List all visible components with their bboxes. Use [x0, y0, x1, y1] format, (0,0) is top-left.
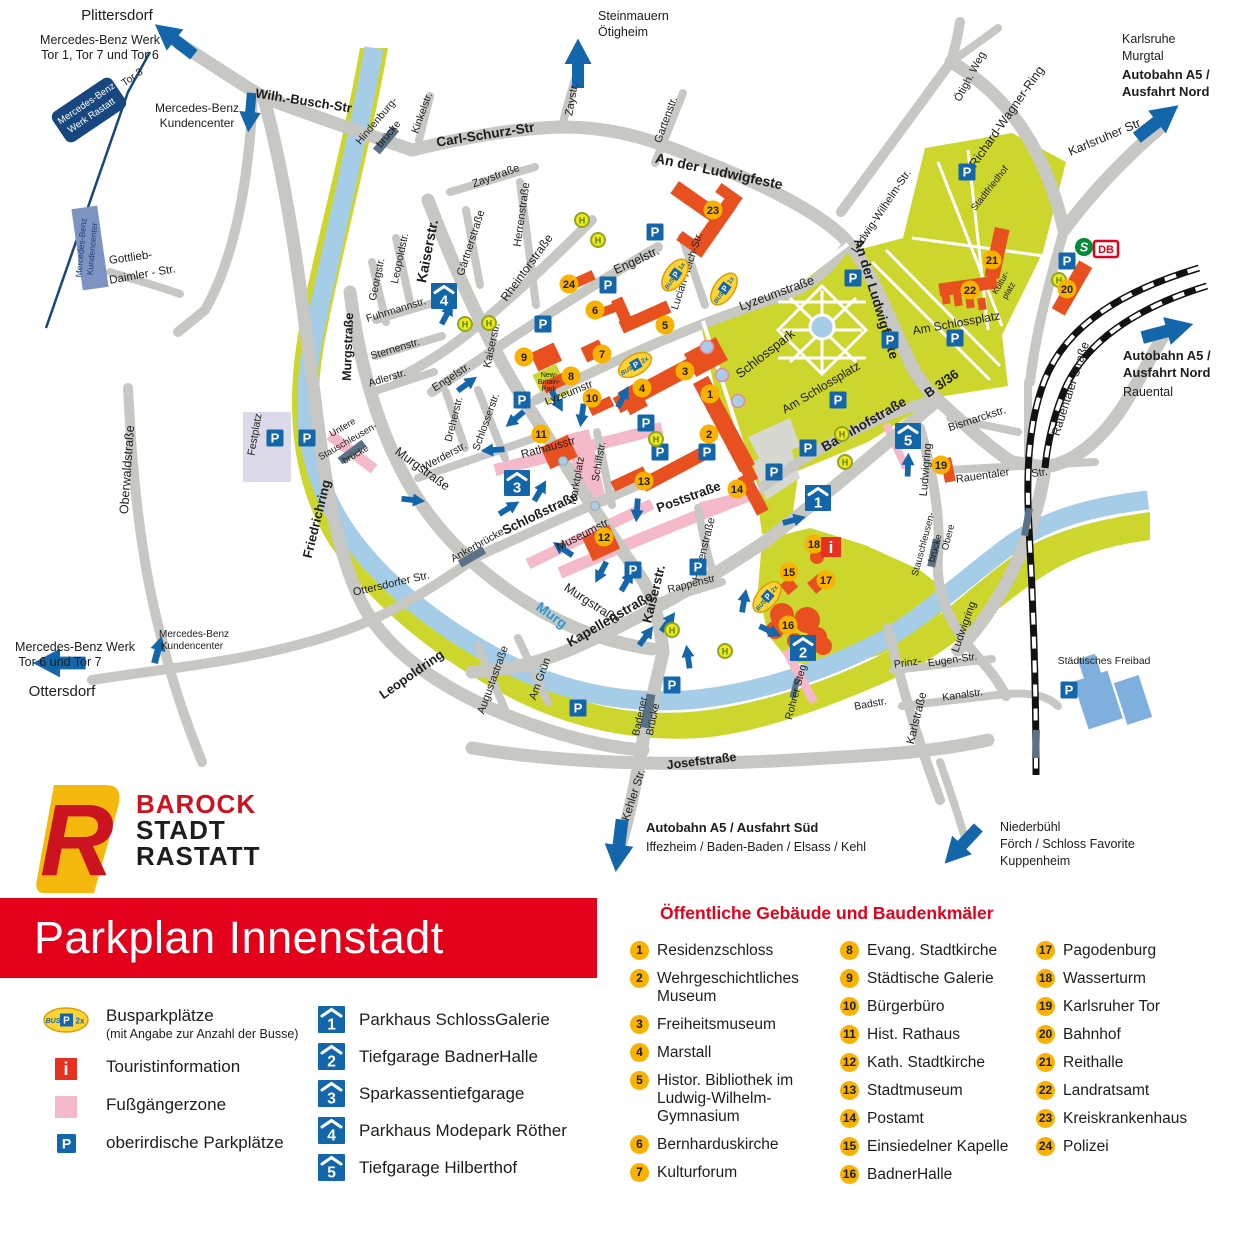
- poi-legend-item-14: 14Postamt: [840, 1109, 1022, 1128]
- poi-label: Landratsamt: [1063, 1081, 1149, 1100]
- poi-legend-item-13: 13Stadtmuseum: [840, 1081, 1022, 1100]
- garage-legend: 1Parkhaus SchlossGalerie2Tiefgarage Badn…: [318, 1006, 567, 1191]
- poi-heading: Öffentliche Gebäude und Baudenkmäler: [660, 903, 994, 924]
- parking-icon: P: [830, 392, 847, 409]
- poi-marker-17: 17: [817, 571, 836, 590]
- parking-icon: P: [647, 224, 664, 241]
- poi-marker-14: 14: [728, 480, 747, 499]
- poi-label: Marstall: [657, 1043, 711, 1062]
- svg-text:i: i: [63, 1059, 68, 1079]
- poi-number-badge: 18: [1036, 969, 1055, 988]
- barock-stadt-rastatt-logo: R BAROCK STADT RASTATT: [36, 783, 260, 895]
- garage-icon: 1: [318, 1006, 345, 1033]
- svg-text:12: 12: [598, 532, 610, 544]
- svg-text:15: 15: [783, 567, 795, 579]
- garage-legend-item-3: 3Sparkassentiefgarage: [318, 1080, 567, 1107]
- svg-text:8: 8: [568, 371, 574, 383]
- garage-legend-label: Sparkassentiefgarage: [345, 1084, 524, 1104]
- poi-label: Stadtmuseum: [867, 1081, 963, 1100]
- poi-marker-8: 8: [562, 367, 581, 386]
- poi-legend-item-18: 18Wasserturm: [1036, 969, 1216, 988]
- poi-number-badge: 22: [1036, 1081, 1055, 1100]
- poi-label: Wehrgeschichtliches Museum: [657, 969, 826, 1006]
- poi-number-badge: 5: [630, 1071, 649, 1090]
- legend-item-parking: Poberirdische Parkplätze: [40, 1133, 298, 1153]
- poi-marker-12: 12: [595, 528, 614, 547]
- legend-label: Busparkplätze(mit Angabe zur Anzahl der …: [92, 1006, 298, 1042]
- sbahn-logo: S: [1075, 238, 1093, 256]
- garage-legend-item-4: 4Parkhaus Modepark Röther: [318, 1117, 567, 1144]
- poi-number-badge: 8: [840, 941, 859, 960]
- poi-label: Evang. Stadtkirche: [867, 941, 997, 960]
- legend-sublabel: (mit Angabe zur Anzahl der Busse): [106, 1026, 298, 1042]
- svg-text:2: 2: [706, 429, 712, 441]
- flow-arrow-icon: [680, 644, 696, 669]
- map-label: Ausfahrt Nord: [1123, 365, 1210, 380]
- map-label: Niederbühl: [1000, 820, 1060, 834]
- map-label: Ottersdorf: [29, 683, 97, 700]
- svg-text:16: 16: [782, 620, 794, 632]
- svg-text:1: 1: [707, 389, 713, 401]
- poi-number-badge: 7: [630, 1163, 649, 1182]
- parking-icon: P: [514, 392, 531, 409]
- garage-icon: 2: [318, 1043, 345, 1070]
- poi-legend-item-16: 16BadnerHalle: [840, 1165, 1022, 1184]
- garage-legend-label: Tiefgarage BadnerHalle: [345, 1047, 538, 1067]
- map-label: Steinmauern: [598, 9, 669, 23]
- svg-text:3: 3: [513, 480, 521, 497]
- map-label: Autobahn A5 /: [1122, 67, 1210, 82]
- poi-legend-item-8: 8Evang. Stadtkirche: [840, 941, 1022, 960]
- svg-text:18: 18: [808, 539, 820, 551]
- map-label: Tor 1, Tor 7 und Tor 6: [41, 48, 159, 62]
- svg-text:11: 11: [535, 429, 547, 441]
- parking-icon: P: [766, 464, 783, 481]
- poi-legend-item-5: 5Histor. Bibliothek im Ludwig-Wilhelm-Gy…: [630, 1071, 826, 1126]
- poi-marker-7: 7: [593, 345, 612, 364]
- bus-stop-icon: H: [482, 316, 496, 330]
- poi-number-badge: 20: [1036, 1025, 1055, 1044]
- svg-text:H: H: [462, 320, 469, 330]
- poi-marker-20: 20: [1058, 280, 1077, 299]
- poi-column-2: 8Evang. Stadtkirche9Städtische Galerie10…: [840, 941, 1022, 1193]
- poi-number-badge: 1: [630, 941, 649, 960]
- poi-legend-item-17: 17Pagodenburg: [1036, 941, 1216, 960]
- map-label: Mercedes-Benz: [159, 629, 229, 640]
- poi-number-badge: 14: [840, 1109, 859, 1128]
- svg-text:P: P: [629, 563, 638, 578]
- svg-text:i: i: [829, 538, 834, 557]
- poi-marker-13: 13: [635, 472, 654, 491]
- poi-legend-item-15: 15Einsiedelner Kapelle: [840, 1137, 1022, 1156]
- svg-text:20: 20: [1061, 284, 1073, 296]
- map-label: Autobahn A5 / Ausfahrt Süd: [646, 820, 818, 835]
- svg-text:P: P: [804, 441, 813, 456]
- page-title: Parkplan Innenstadt: [0, 912, 444, 964]
- parking-icon: P: [638, 415, 655, 432]
- poi-marker-3: 3: [676, 362, 695, 381]
- svg-text:R: R: [40, 783, 114, 895]
- bus-stop-icon: H: [575, 213, 589, 227]
- map-label: Gottlieb-: [108, 249, 153, 267]
- map-label: Engelstr.: [430, 361, 472, 394]
- svg-text:17: 17: [820, 575, 832, 587]
- svg-text:2: 2: [799, 645, 807, 662]
- map-label: Kuppenheim: [1000, 854, 1070, 868]
- poi-marker-1: 1: [701, 385, 720, 404]
- svg-text:P: P: [651, 225, 660, 240]
- poi-marker-24: 24: [560, 275, 579, 294]
- poi-legend-item-21: 21Reithalle: [1036, 1053, 1216, 1072]
- poi-legend-item-19: 19Karlsruher Tor: [1036, 997, 1216, 1016]
- poi-marker-5: 5: [656, 316, 675, 335]
- map-label: Mercedes-Benz: [155, 101, 239, 115]
- map-label: Iffezheim / Baden-Baden / Elsass / Kehl: [646, 840, 866, 854]
- poi-marker-4: 4: [633, 379, 652, 398]
- bus-stop-icon: H: [718, 644, 732, 658]
- parking-icon: P: [1059, 253, 1076, 270]
- poi-legend-item-9: 9Städtische Galerie: [840, 969, 1022, 988]
- tourist-info-icon: i: [55, 1058, 77, 1080]
- svg-text:P: P: [834, 393, 843, 408]
- poi-number-badge: 2: [630, 969, 649, 988]
- map-label: Sternenstr.: [369, 336, 421, 362]
- map-label: Britain-: [538, 379, 561, 386]
- svg-text:19: 19: [935, 460, 947, 472]
- map-label: Ausfahrt Nord: [1122, 84, 1209, 99]
- garage-icon: 3: [318, 1080, 345, 1107]
- poi-label: Bürgerbüro: [867, 997, 945, 1016]
- svg-text:P: P: [61, 1136, 70, 1152]
- logo-line2: STADT: [136, 817, 260, 843]
- poi-number-badge: 12: [840, 1053, 859, 1072]
- svg-text:23: 23: [707, 205, 719, 217]
- legend-label: Touristinformation: [92, 1057, 240, 1077]
- poi-label: Wasserturm: [1063, 969, 1146, 988]
- garage-icon: 5: [318, 1154, 345, 1181]
- poi-legend-item-3: 3Freiheitsmuseum: [630, 1015, 826, 1034]
- map-label: Carl-Schurz-Str: [435, 119, 536, 149]
- legend-label: Fußgängerzone: [92, 1095, 226, 1115]
- poi-marker-16: 16: [779, 616, 798, 635]
- bus-stop-icon: H: [649, 432, 663, 446]
- poi-number-badge: 15: [840, 1137, 859, 1156]
- svg-text:H: H: [722, 647, 729, 657]
- garage-legend-item-1: 1Parkhaus SchlossGalerie: [318, 1006, 567, 1033]
- svg-text:P: P: [1065, 683, 1074, 698]
- poi-label: Pagodenburg: [1063, 941, 1156, 960]
- poi-marker-18: 18: [805, 535, 824, 554]
- logo-line1: BAROCK: [136, 791, 260, 817]
- legend-symbols: BUSP2xBusparkplätze(mit Angabe zur Anzah…: [40, 1006, 298, 1168]
- map-label: New-: [541, 372, 558, 379]
- poi-number-badge: 23: [1036, 1109, 1055, 1128]
- poi-legend-item-12: 12Kath. Stadtkirche: [840, 1053, 1022, 1072]
- poi-number-badge: 19: [1036, 997, 1055, 1016]
- legend-item-info: iTouristinformation: [40, 1057, 298, 1080]
- poi-column-1: 1Residenzschloss2Wehrgeschichtliches Mus…: [630, 941, 826, 1193]
- map-label: Kundencenter: [160, 116, 235, 130]
- poi-label: Kreiskrankenhaus: [1063, 1109, 1187, 1128]
- poi-label: Histor. Bibliothek im Ludwig-Wilhelm-Gym…: [657, 1071, 826, 1126]
- svg-text:21: 21: [986, 255, 998, 267]
- svg-text:10: 10: [586, 393, 598, 405]
- title-banner: Parkplan Innenstadt: [0, 898, 597, 978]
- svg-text:2: 2: [327, 1054, 336, 1071]
- poi-number-badge: 6: [630, 1135, 649, 1154]
- svg-text:6: 6: [592, 305, 598, 317]
- svg-text:DB: DB: [1098, 244, 1114, 256]
- poi-marker-15: 15: [780, 563, 799, 582]
- tourist-info-icon: i: [821, 537, 841, 557]
- svg-text:P: P: [604, 278, 613, 293]
- garage-marker-4: 4: [431, 283, 457, 310]
- poi-label: Residenzschloss: [657, 941, 773, 960]
- svg-text:2x: 2x: [76, 1017, 85, 1026]
- garage-marker-2: 2: [790, 635, 816, 662]
- poi-marker-22: 22: [961, 281, 980, 300]
- svg-text:P: P: [518, 393, 527, 408]
- svg-text:5: 5: [904, 433, 912, 450]
- poi-label: BadnerHalle: [867, 1165, 952, 1184]
- parkplan-poster: PlittersdorfMercedes-Benz WerkTor 1, Tor…: [0, 0, 1240, 1240]
- map-label: Kehler Str.: [620, 768, 648, 823]
- parking-icon: P: [845, 270, 862, 287]
- db-logo: DB: [1094, 241, 1118, 257]
- garage-marker-5: 5: [895, 423, 921, 450]
- svg-text:P: P: [963, 165, 972, 180]
- poi-number-badge: 24: [1036, 1137, 1055, 1156]
- poi-marker-19: 19: [932, 456, 951, 475]
- garage-legend-item-5: 5Tiefgarage Hilberthof: [318, 1154, 567, 1181]
- svg-text:P: P: [539, 317, 548, 332]
- svg-text:H: H: [842, 458, 849, 468]
- poi-label: Postamt: [867, 1109, 924, 1128]
- exit-arrow-icon: [1139, 310, 1197, 351]
- poi-label: Kath. Stadtkirche: [867, 1053, 985, 1072]
- svg-text:P: P: [642, 416, 651, 431]
- parking-icon: P: [570, 700, 587, 717]
- bus-parking-icon: BUSP2x: [43, 1007, 89, 1033]
- svg-text:4: 4: [440, 293, 449, 310]
- poi-label: Städtische Galerie: [867, 969, 994, 988]
- poi-marker-23: 23: [704, 201, 723, 220]
- poi-label: Polizei: [1063, 1137, 1109, 1156]
- legend-item-bus: BUSP2xBusparkplätze(mit Angabe zur Anzah…: [40, 1006, 298, 1042]
- city-map: PlittersdorfMercedes-Benz WerkTor 1, Tor…: [0, 0, 1240, 898]
- poi-number-badge: 4: [630, 1043, 649, 1062]
- svg-text:5: 5: [662, 320, 668, 332]
- poi-column-3: 17Pagodenburg18Wasserturm19Karlsruher To…: [1036, 941, 1216, 1193]
- poi-legend-item-23: 23Kreiskrankenhaus: [1036, 1109, 1216, 1128]
- svg-text:P: P: [886, 333, 895, 348]
- svg-text:3: 3: [327, 1091, 336, 1108]
- map-label: Städtisches Freibad: [1058, 655, 1151, 667]
- bus-stop-icon: H: [591, 233, 605, 247]
- parking-icon: P: [600, 277, 617, 294]
- svg-text:4: 4: [327, 1128, 336, 1145]
- bus-stop-icon: H: [665, 623, 679, 637]
- svg-text:H: H: [595, 236, 602, 246]
- bus-stop-icon: H: [458, 317, 472, 331]
- svg-text:3: 3: [682, 366, 688, 378]
- logo-line3: RASTATT: [136, 843, 260, 869]
- garage-icon: 4: [318, 1117, 345, 1144]
- map-label: Tor 6 und Tor 7: [18, 655, 101, 669]
- map-label: Ötigheim: [598, 25, 648, 39]
- flow-arrow-icon: [736, 588, 753, 614]
- map-label: Mercedes-Benz Werk: [15, 640, 136, 654]
- flow-arrow-icon: [574, 403, 590, 428]
- poi-number-badge: 10: [840, 997, 859, 1016]
- garage-marker-1: 1: [805, 485, 831, 512]
- svg-text:P: P: [1063, 254, 1072, 269]
- garage-marker-3: 3: [504, 470, 530, 497]
- poi-legend-item-7: 7Kulturforum: [630, 1163, 826, 1182]
- svg-text:H: H: [839, 430, 846, 440]
- map-label: Zaystr.: [563, 82, 581, 117]
- svg-text:14: 14: [731, 484, 744, 496]
- svg-text:9: 9: [521, 352, 527, 364]
- map-label: An der Ludwigfeste: [654, 150, 785, 193]
- svg-text:H: H: [486, 319, 493, 329]
- svg-text:H: H: [579, 216, 586, 226]
- exit-arrow-icon: [565, 39, 592, 89]
- legend-label: oberirdische Parkplätze: [92, 1133, 284, 1153]
- map-label: Str.: [1031, 466, 1049, 480]
- svg-text:P: P: [63, 1016, 70, 1027]
- parking-icon: P: [699, 444, 716, 461]
- garage-legend-item-2: 2Tiefgarage BadnerHalle: [318, 1043, 567, 1070]
- map-label: Karlsruhe: [1122, 32, 1176, 46]
- poi-legend-item-10: 10Bürgerbüro: [840, 997, 1022, 1016]
- map-label: Badstr.: [853, 695, 887, 712]
- parking-icon: P: [690, 559, 707, 576]
- svg-text:P: P: [694, 560, 703, 575]
- poi-marker-21: 21: [983, 251, 1002, 270]
- poi-label: Bernharduskirche: [657, 1135, 778, 1154]
- map-label: Murgstraße: [340, 313, 356, 382]
- poi-label: Karlsruher Tor: [1063, 997, 1160, 1016]
- poi-legend-item-20: 20Bahnhof: [1036, 1025, 1216, 1044]
- logo-monogram: R: [36, 783, 122, 895]
- pedestrian-zone-icon: [55, 1096, 77, 1118]
- poi-marker-6: 6: [586, 301, 605, 320]
- svg-text:H: H: [669, 626, 676, 636]
- poi-number-badge: 11: [840, 1025, 859, 1044]
- poi-legend-item-6: 6Bernharduskirche: [630, 1135, 826, 1154]
- map-label: Kaiserstr.: [413, 218, 441, 284]
- poi-number-badge: 17: [1036, 941, 1055, 960]
- parking-icon: P: [800, 440, 817, 457]
- svg-text:P: P: [951, 331, 960, 346]
- garage-legend-label: Parkhaus SchlossGalerie: [345, 1010, 550, 1030]
- svg-text:BUS: BUS: [46, 1018, 61, 1025]
- poi-legend-item-24: 24Polizei: [1036, 1137, 1216, 1156]
- bus-parking-icon: BUSP1x: [705, 269, 742, 310]
- poi-legend-item-11: 11Hist. Rathaus: [840, 1025, 1022, 1044]
- svg-text:22: 22: [964, 285, 976, 297]
- map-label: Förch / Schloss Favorite: [1000, 837, 1135, 851]
- poi-marker-2: 2: [700, 425, 719, 444]
- map-label: Kinkelstr.: [409, 91, 435, 135]
- poi-legend-item-22: 22Landratsamt: [1036, 1081, 1216, 1100]
- svg-text:4: 4: [639, 383, 646, 395]
- parking-icon: P: [299, 430, 316, 447]
- svg-text:1: 1: [814, 495, 822, 512]
- svg-text:S: S: [1080, 240, 1089, 255]
- map-label: Park: [542, 386, 557, 393]
- parking-icon: P: [664, 677, 681, 694]
- svg-text:P: P: [668, 678, 677, 693]
- legend-item-pedestrian: Fußgängerzone: [40, 1095, 298, 1118]
- poi-number-badge: 21: [1036, 1053, 1055, 1072]
- poi-label: Bahnhof: [1063, 1025, 1121, 1044]
- garage-legend-label: Tiefgarage Hilberthof: [345, 1158, 517, 1178]
- parking-icon: P: [882, 332, 899, 349]
- map-label: Plittersdorf: [81, 7, 154, 24]
- svg-text:P: P: [849, 271, 858, 286]
- map-label: Kundencenter: [161, 641, 224, 652]
- parking-icon: P: [947, 330, 964, 347]
- poi-marker-9: 9: [515, 348, 534, 367]
- svg-text:13: 13: [638, 476, 650, 488]
- svg-text:P: P: [271, 431, 280, 446]
- parking-icon: P: [267, 430, 284, 447]
- map-label: Engelstr.: [611, 244, 661, 277]
- parking-icon: P: [535, 316, 552, 333]
- poi-legend-item-4: 4Marstall: [630, 1043, 826, 1062]
- poi-label: Einsiedelner Kapelle: [867, 1137, 1008, 1156]
- poi-label: Kulturforum: [657, 1163, 737, 1182]
- bus-stop-icon: H: [835, 427, 849, 441]
- svg-text:P: P: [303, 431, 312, 446]
- poi-legend-item-2: 2Wehrgeschichtliches Museum: [630, 969, 826, 1006]
- svg-text:P: P: [703, 445, 712, 460]
- parking-icon: P: [959, 164, 976, 181]
- poi-number-badge: 9: [840, 969, 859, 988]
- poi-label: Freiheitsmuseum: [657, 1015, 776, 1034]
- svg-text:P: P: [574, 701, 583, 716]
- svg-text:24: 24: [563, 279, 576, 291]
- parking-icon: P: [57, 1134, 76, 1153]
- map-label: Murgtal: [1122, 49, 1164, 63]
- map-label: Autobahn A5 /: [1123, 348, 1211, 363]
- svg-text:7: 7: [599, 349, 605, 361]
- poi-marker-10: 10: [583, 389, 602, 408]
- parking-icon: P: [1061, 682, 1078, 699]
- poi-list: 1Residenzschloss2Wehrgeschichtliches Mus…: [630, 941, 1230, 1193]
- map-label: Mercedes-Benz Werk: [40, 33, 161, 47]
- poi-label: Reithalle: [1063, 1053, 1123, 1072]
- garage-legend-label: Parkhaus Modepark Röther: [345, 1121, 567, 1141]
- svg-text:H: H: [653, 435, 660, 445]
- parking-icon: P: [625, 562, 642, 579]
- bus-stop-icon: H: [838, 455, 852, 469]
- svg-text:P: P: [770, 465, 779, 480]
- poi-number-badge: 13: [840, 1081, 859, 1100]
- svg-text:1: 1: [327, 1017, 336, 1034]
- poi-label: Hist. Rathaus: [867, 1025, 960, 1044]
- poi-number-badge: 16: [840, 1165, 859, 1184]
- poi-marker-11: 11: [532, 425, 551, 444]
- svg-text:5: 5: [327, 1165, 336, 1182]
- map-label: Rauental: [1123, 385, 1173, 399]
- poi-number-badge: 3: [630, 1015, 649, 1034]
- poi-legend-item-1: 1Residenzschloss: [630, 941, 826, 960]
